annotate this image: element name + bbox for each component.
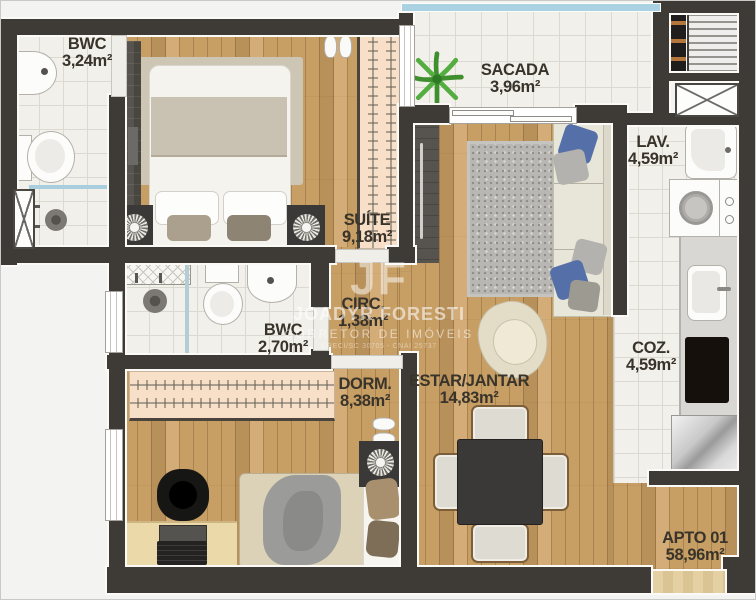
wall-segment (653, 1, 756, 13)
suite-door (335, 249, 389, 263)
floor-plan: BWC 3,24m² SUÍTE 9,18m² SACADA 3,96m² LA… (0, 0, 756, 600)
room-name: COZ. (603, 340, 699, 357)
accent-pillow (365, 519, 401, 558)
room-area: 3,24m² (41, 53, 133, 70)
wall-segment (1, 247, 113, 263)
wall-segment (1, 247, 113, 263)
table-lamp (367, 449, 394, 476)
laptop-keyboard (157, 541, 207, 565)
washer-door (679, 191, 713, 225)
glass-pane (510, 116, 572, 122)
room-area: 9,18m² (319, 229, 415, 246)
room-label-coz: COZ. 4,59m² (603, 340, 699, 375)
table-lamp (121, 214, 148, 241)
balcony-glass-railing (401, 3, 661, 12)
room-area: 14,83m² (397, 390, 541, 407)
room-name: BWC (235, 322, 331, 339)
toilet-bowl-inner (35, 139, 65, 173)
wall-segment (739, 1, 756, 593)
room-area: 2,70m² (235, 339, 331, 356)
apartment-label: APTO 01 58,96m² (645, 530, 745, 565)
shower-head (45, 209, 67, 231)
sliding-door-panel (413, 117, 439, 263)
entry-door (651, 569, 727, 595)
balcony-sliding-door (449, 107, 577, 124)
shower-head (143, 289, 167, 313)
glass-pane (452, 110, 514, 116)
toilet-bowl-inner (210, 291, 234, 317)
room-area: 3,96m² (459, 79, 571, 96)
living-rug (467, 141, 563, 297)
kitchen-sink-basin (692, 271, 720, 313)
room-name: SUÍTE (319, 212, 415, 229)
bathroom-shelf (205, 263, 239, 283)
accent-pillow (227, 215, 271, 241)
desk-chair-cushion (169, 481, 197, 509)
duct-shaft (13, 189, 35, 249)
palm-plant (407, 49, 467, 109)
throw-pillow-gray (567, 279, 601, 313)
bwc2-window (105, 291, 123, 353)
faucet-lever (717, 287, 731, 291)
towel-hook (159, 273, 162, 283)
door-handle (420, 143, 423, 239)
room-name: SACADA (459, 62, 571, 79)
suite-window (399, 25, 415, 107)
wall-segment (739, 1, 756, 593)
dorm-door (331, 355, 403, 369)
room-label-sacada: SACADA 3,96m² (459, 62, 571, 97)
towel-hook (135, 273, 138, 283)
table-lamp (293, 214, 320, 241)
wall-segment (653, 1, 669, 125)
dining-table (457, 439, 543, 525)
faucet-dot (725, 147, 731, 153)
room-label-lav: LAV. 4,59m² (605, 134, 701, 169)
room-area: 4,59m² (605, 151, 701, 168)
wall-segment (653, 1, 756, 13)
stairs (687, 13, 741, 79)
wall-segment (413, 567, 651, 593)
fridge (671, 415, 739, 479)
dorm-wardrobe (129, 371, 335, 421)
room-label-bwc2: BWC 2,70m² (235, 322, 331, 357)
dining-chair (471, 523, 529, 563)
wall-segment (653, 1, 669, 125)
room-area: 4,59m² (603, 357, 699, 374)
knob (725, 197, 734, 206)
faucet-dot (267, 277, 274, 284)
slippers (323, 35, 353, 58)
dorm-window (105, 429, 123, 521)
laptop-screen (159, 525, 207, 542)
throw-pillow-gray (552, 148, 590, 186)
room-label-estar: ESTAR/JANTAR 14,83m² (397, 373, 541, 408)
room-name: ESTAR/JANTAR (397, 373, 541, 390)
laundry-cabinet (719, 179, 741, 237)
blanket-fold (283, 491, 323, 551)
apartment-area: 58,96m² (645, 547, 745, 564)
duvet-fold (151, 97, 287, 157)
room-name: BWC (41, 36, 133, 53)
shower-glass-partition (185, 265, 189, 357)
room-label-suite: SUÍTE 9,18m² (319, 212, 415, 247)
duct-shaft (675, 83, 739, 117)
room-name: CIRC. (315, 296, 411, 313)
room-label-bwc1: BWC 3,24m² (41, 36, 133, 71)
wall-segment (413, 567, 651, 593)
room-name: LAV. (605, 134, 701, 151)
knob (725, 215, 734, 224)
accent-pillow (365, 477, 402, 521)
shower-glass-partition (29, 185, 111, 189)
accent-pillow (167, 215, 211, 241)
tv-screen (128, 127, 138, 165)
apartment-number: APTO 01 (645, 530, 745, 547)
stair-rail (671, 13, 686, 75)
